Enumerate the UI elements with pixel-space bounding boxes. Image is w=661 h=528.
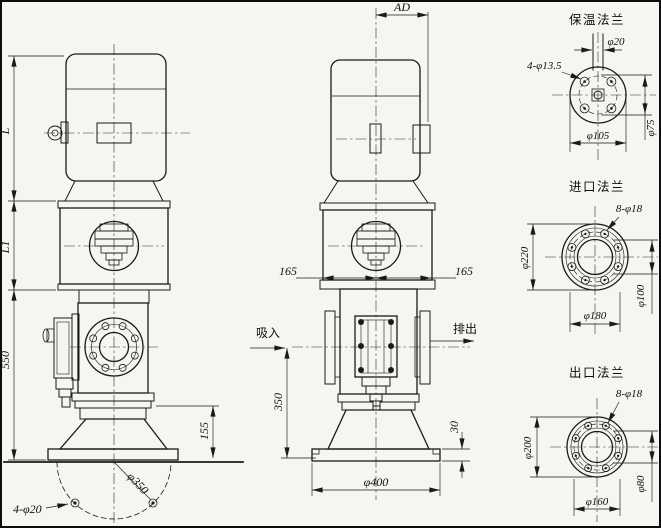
motor-front (48, 54, 166, 181)
motor-side (331, 60, 430, 181)
pump-body-side (325, 289, 430, 410)
pump-dimension-drawing: φ350 4-φ20 L L1 550 155 AD (0, 0, 661, 528)
base-plate-front (48, 449, 178, 460)
dim-label-30: 30 (447, 421, 461, 434)
dim-label-L1: L1 (0, 241, 12, 255)
dim-label-phi75: φ75 (645, 119, 657, 137)
outlet-flange-title: 出口法兰 (569, 365, 625, 380)
suction-flange-side (325, 311, 340, 384)
dim-350: 350 (271, 348, 316, 458)
dim-label-anchor-circle: φ350 (124, 469, 151, 497)
dim-label-165-left: 165 (279, 264, 297, 278)
flange-detail-inlet: 进口法兰 8-φ18 φ220 (519, 179, 658, 336)
anchor-bolt-circle: φ350 4-φ20 (13, 462, 171, 519)
dim-4-phi13-5: 4-φ13.5 (527, 60, 581, 79)
dim-label-phi200: φ200 (522, 436, 534, 459)
dim-label-phi160: φ160 (586, 496, 609, 508)
dim-label-350: 350 (271, 393, 285, 412)
insulation-flange-title: 保温法兰 (569, 12, 625, 27)
discharge-annotation: 排出 (430, 322, 477, 341)
inlet-flange-title: 进口法兰 (569, 179, 625, 194)
dim-label-anchor-holes: 4-φ20 (13, 502, 42, 516)
suction-label: 吸入 (256, 326, 280, 340)
dim-inlet-holes: 8-φ18 (607, 203, 643, 230)
dim-label-155: 155 (197, 422, 211, 440)
dim-label-phi180: φ180 (584, 310, 607, 322)
dim-label-inlet-holes: 8-φ18 (616, 203, 643, 215)
technical-drawing-canvas: φ350 4-φ20 L L1 550 155 AD (0, 0, 661, 528)
dim-label-phi105: φ105 (587, 130, 610, 142)
dim-label-phi100: φ100 (635, 284, 647, 307)
dim-outlet-holes: 8-φ18 (608, 388, 643, 423)
dim-label-4-phi13-5: 4-φ13.5 (527, 60, 562, 72)
discharge-label: 排出 (453, 322, 477, 336)
motor-rib (370, 124, 381, 153)
dim-label-L: L (0, 127, 12, 135)
dim-label-outlet-holes: 8-φ18 (616, 388, 643, 400)
dim-label-phi20: φ20 (607, 36, 625, 48)
side-view: AD (250, 0, 477, 500)
front-view: φ350 4-φ20 L L1 550 155 (0, 44, 243, 524)
flange-detail-outlet: 出口法兰 8-φ18 φ200 (522, 365, 658, 522)
suction-annotation: 吸入 (250, 326, 285, 348)
dim-label-550: 550 (0, 351, 12, 369)
dim-phi75: φ75 (601, 75, 657, 140)
dim-label-AD: AD (393, 0, 410, 14)
lifting-eye-bolt (48, 122, 68, 143)
dim-label-phi400: φ400 (364, 475, 389, 489)
pump-body-front (43, 290, 149, 407)
dim-label-165-right: 165 (455, 264, 473, 278)
dim-label-phi80: φ80 (635, 475, 647, 493)
pump-rings-side (338, 394, 419, 410)
dim-phi20: φ20 (574, 36, 625, 50)
dim-30: 30 (442, 421, 470, 478)
flange-detail-insulation: 保温法兰 φ20 4-φ13.5 φ105 (527, 12, 657, 162)
front-height-dimensions: L L1 550 155 (0, 56, 219, 460)
dim-label-phi220: φ220 (519, 246, 531, 269)
